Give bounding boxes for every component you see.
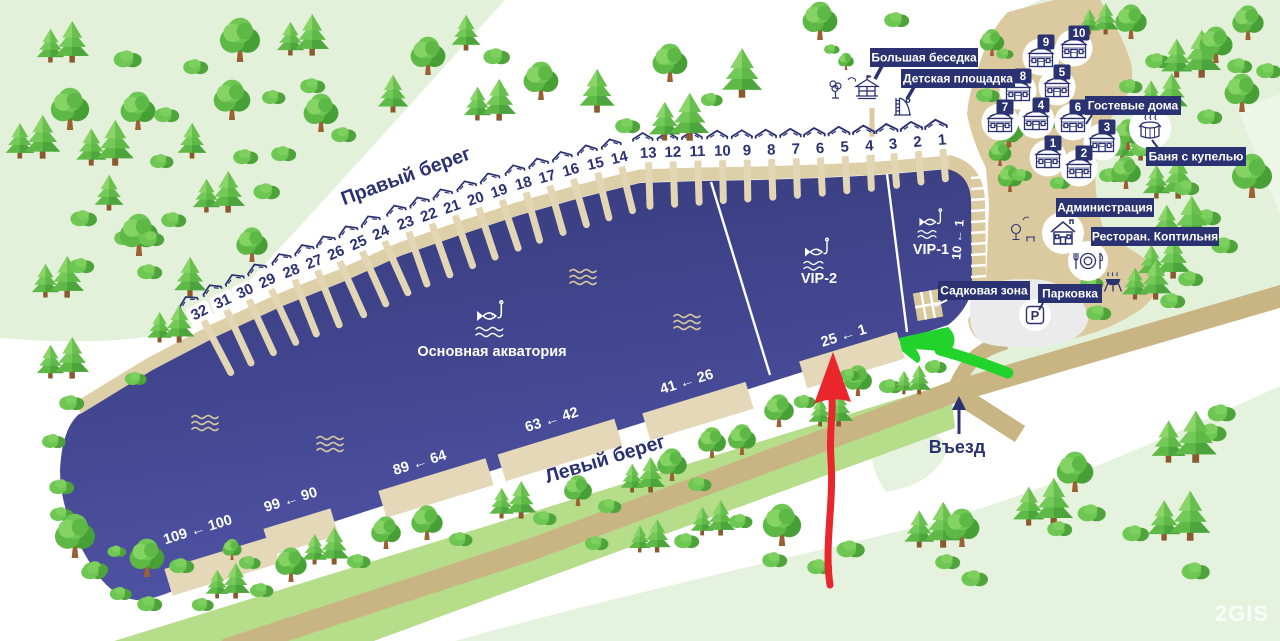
svg-text:1: 1 <box>937 131 947 149</box>
svg-text:P: P <box>1031 308 1040 323</box>
svg-text:7: 7 <box>1002 102 1008 114</box>
svg-text:Въезд: Въезд <box>929 437 986 457</box>
svg-text:Садковая зона: Садковая зона <box>940 284 1028 298</box>
svg-text:6: 6 <box>816 140 825 157</box>
svg-text:2: 2 <box>1081 148 1087 160</box>
svg-text:4: 4 <box>1038 100 1045 112</box>
svg-text:5: 5 <box>840 138 849 155</box>
svg-text:6: 6 <box>1075 102 1081 114</box>
svg-text:9: 9 <box>1043 37 1049 49</box>
svg-text:Большая беседка: Большая беседка <box>871 51 977 65</box>
svg-text:11: 11 <box>689 143 705 161</box>
svg-text:5: 5 <box>1059 67 1066 79</box>
svg-text:Ресторан. Коптильня: Ресторан. Коптильня <box>1092 230 1218 244</box>
svg-text:Парковка: Парковка <box>1042 287 1098 301</box>
svg-text:10: 10 <box>1073 28 1086 40</box>
svg-text:7: 7 <box>791 141 800 158</box>
svg-text:Гостевые дома: Гостевые дома <box>1088 99 1179 113</box>
svg-text:Детская площадка: Детская площадка <box>903 72 1013 86</box>
svg-text:2: 2 <box>913 133 923 151</box>
svg-text:Баня с купелью: Баня с купелью <box>1149 150 1244 164</box>
svg-text:2GIS: 2GIS <box>1215 601 1269 626</box>
svg-text:12: 12 <box>664 144 681 162</box>
svg-text:VIP-2: VIP-2 <box>801 271 837 287</box>
svg-text:3: 3 <box>888 135 898 153</box>
svg-text:4: 4 <box>865 137 875 154</box>
svg-text:8: 8 <box>767 141 776 158</box>
svg-text:Администрация: Администрация <box>1057 201 1152 215</box>
svg-text:1: 1 <box>1050 138 1057 150</box>
svg-text:13: 13 <box>640 144 657 162</box>
svg-text:9: 9 <box>743 142 752 159</box>
svg-text:10: 10 <box>714 142 731 159</box>
svg-text:Основная акватория: Основная акватория <box>417 344 566 360</box>
svg-text:3: 3 <box>1104 122 1110 134</box>
svg-text:VIP-1: VIP-1 <box>913 242 949 258</box>
svg-text:8: 8 <box>1020 71 1027 83</box>
